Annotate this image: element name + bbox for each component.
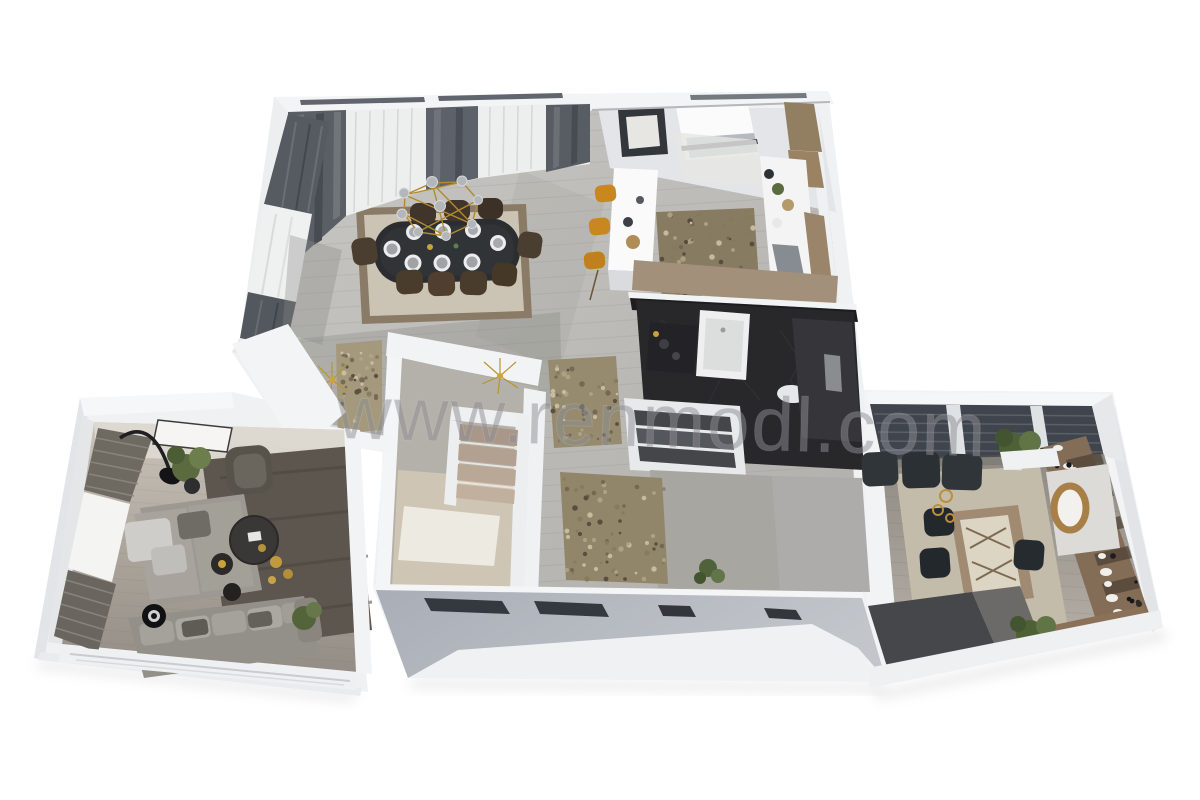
- svg-text:www.renmodl.com: www.renmodl.com: [335, 370, 989, 473]
